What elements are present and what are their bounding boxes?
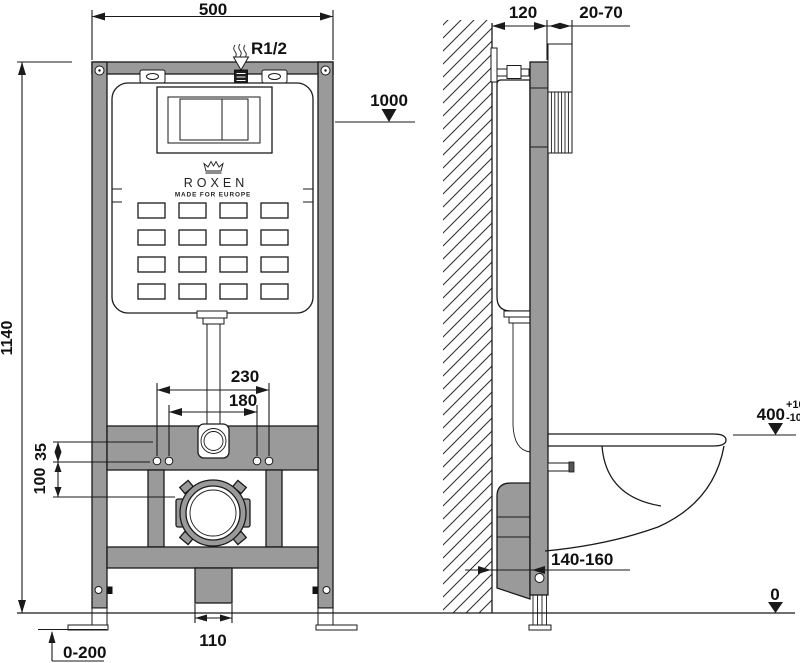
drain-outlet-stub (195, 568, 232, 603)
dim-offset-top-label: 35 (33, 443, 50, 461)
brand-tagline: MADE FOR EUROPE (175, 192, 251, 199)
fixing-stud (548, 463, 569, 471)
dim-flush-height-label: 1000 (370, 91, 408, 110)
lower-bar (107, 547, 318, 568)
dim-seat-tol-plus: +10 (786, 399, 800, 411)
leg-pin-hole (95, 587, 102, 594)
fixing-hole (153, 457, 161, 465)
dim-front-width: 500 (92, 0, 333, 60)
threaded-foot (533, 595, 547, 625)
bowl-rim (548, 434, 726, 446)
flush-plate-shaft (548, 92, 572, 153)
dim-flush-height: 1000 (335, 91, 415, 122)
dim-floor-level: 0 (768, 585, 783, 613)
column-hole (535, 574, 544, 583)
dim-seat-height: 400 +10 -10 (733, 399, 800, 435)
drain-coupling (176, 480, 250, 546)
toilet-bowl (545, 434, 726, 551)
cistern: ROXEN MADE FOR EUROPE (112, 83, 313, 313)
right-strut (266, 470, 282, 547)
side-view (443, 20, 726, 630)
frame-left-rail (92, 62, 107, 608)
flush-bend (513, 323, 530, 452)
flush-button-small (222, 99, 248, 140)
dim-front-width-label: 500 (199, 0, 227, 19)
drawing-canvas: ROXEN MADE FOR EUROPE (0, 0, 800, 663)
dim-frame-height: 1140 (0, 62, 72, 613)
fixing-hole (265, 457, 273, 465)
wall-bracket (491, 48, 529, 82)
frame-top-bar (92, 62, 333, 74)
drain-elbow (497, 483, 530, 599)
left-strut (148, 470, 164, 547)
flush-button-large (180, 99, 222, 140)
dim-foot-adjust: 0-200 (38, 630, 107, 663)
dim-foot-adjust-label: 0-200 (63, 643, 106, 662)
cistern-profile (497, 80, 530, 452)
crossbar (107, 424, 318, 470)
wall-hatch (443, 20, 492, 613)
inlet-fitting (198, 424, 229, 458)
right-base-plate (316, 625, 357, 630)
brand-name: ROXEN (184, 176, 248, 190)
dim-fixing-inner-label: 180 (229, 391, 257, 410)
flush-shaft-housing (548, 44, 572, 92)
dim-floor-level-label: 0 (770, 585, 779, 604)
dim-frame-height-label: 1140 (0, 321, 16, 356)
dim-fixing-outer-label: 230 (231, 367, 259, 386)
dim-drain-offset-label: 140-160 (551, 550, 613, 569)
leg-clamp (313, 587, 318, 595)
bowl-inner-curve (602, 446, 661, 506)
dim-plate-adjust-label: 20-70 (579, 3, 622, 22)
dim-depth-label: 120 (509, 3, 537, 22)
right-foot (318, 608, 333, 625)
dim-drain-width: 110 (195, 604, 232, 650)
installation-drawing: ROXEN MADE FOR EUROPE (0, 0, 800, 663)
front-view: ROXEN MADE FOR EUROPE (68, 44, 357, 630)
dim-seat-height-label: 400 (757, 405, 785, 424)
leg-pin-hole (323, 587, 330, 594)
dim-drain-width-label: 110 (199, 631, 226, 650)
side-base-plate (529, 625, 551, 630)
left-foot (92, 608, 107, 625)
frame-right-rail (318, 62, 333, 608)
flush-pipe (197, 311, 227, 426)
fixing-hole (253, 457, 261, 465)
dim-offset-bottom-label: 100 (32, 468, 49, 495)
leg-clamp (108, 587, 113, 595)
inlet-thread-label: R1/2 (251, 39, 287, 58)
dim-seat-tol-minus: -10 (786, 412, 800, 424)
fixing-hole (165, 457, 173, 465)
